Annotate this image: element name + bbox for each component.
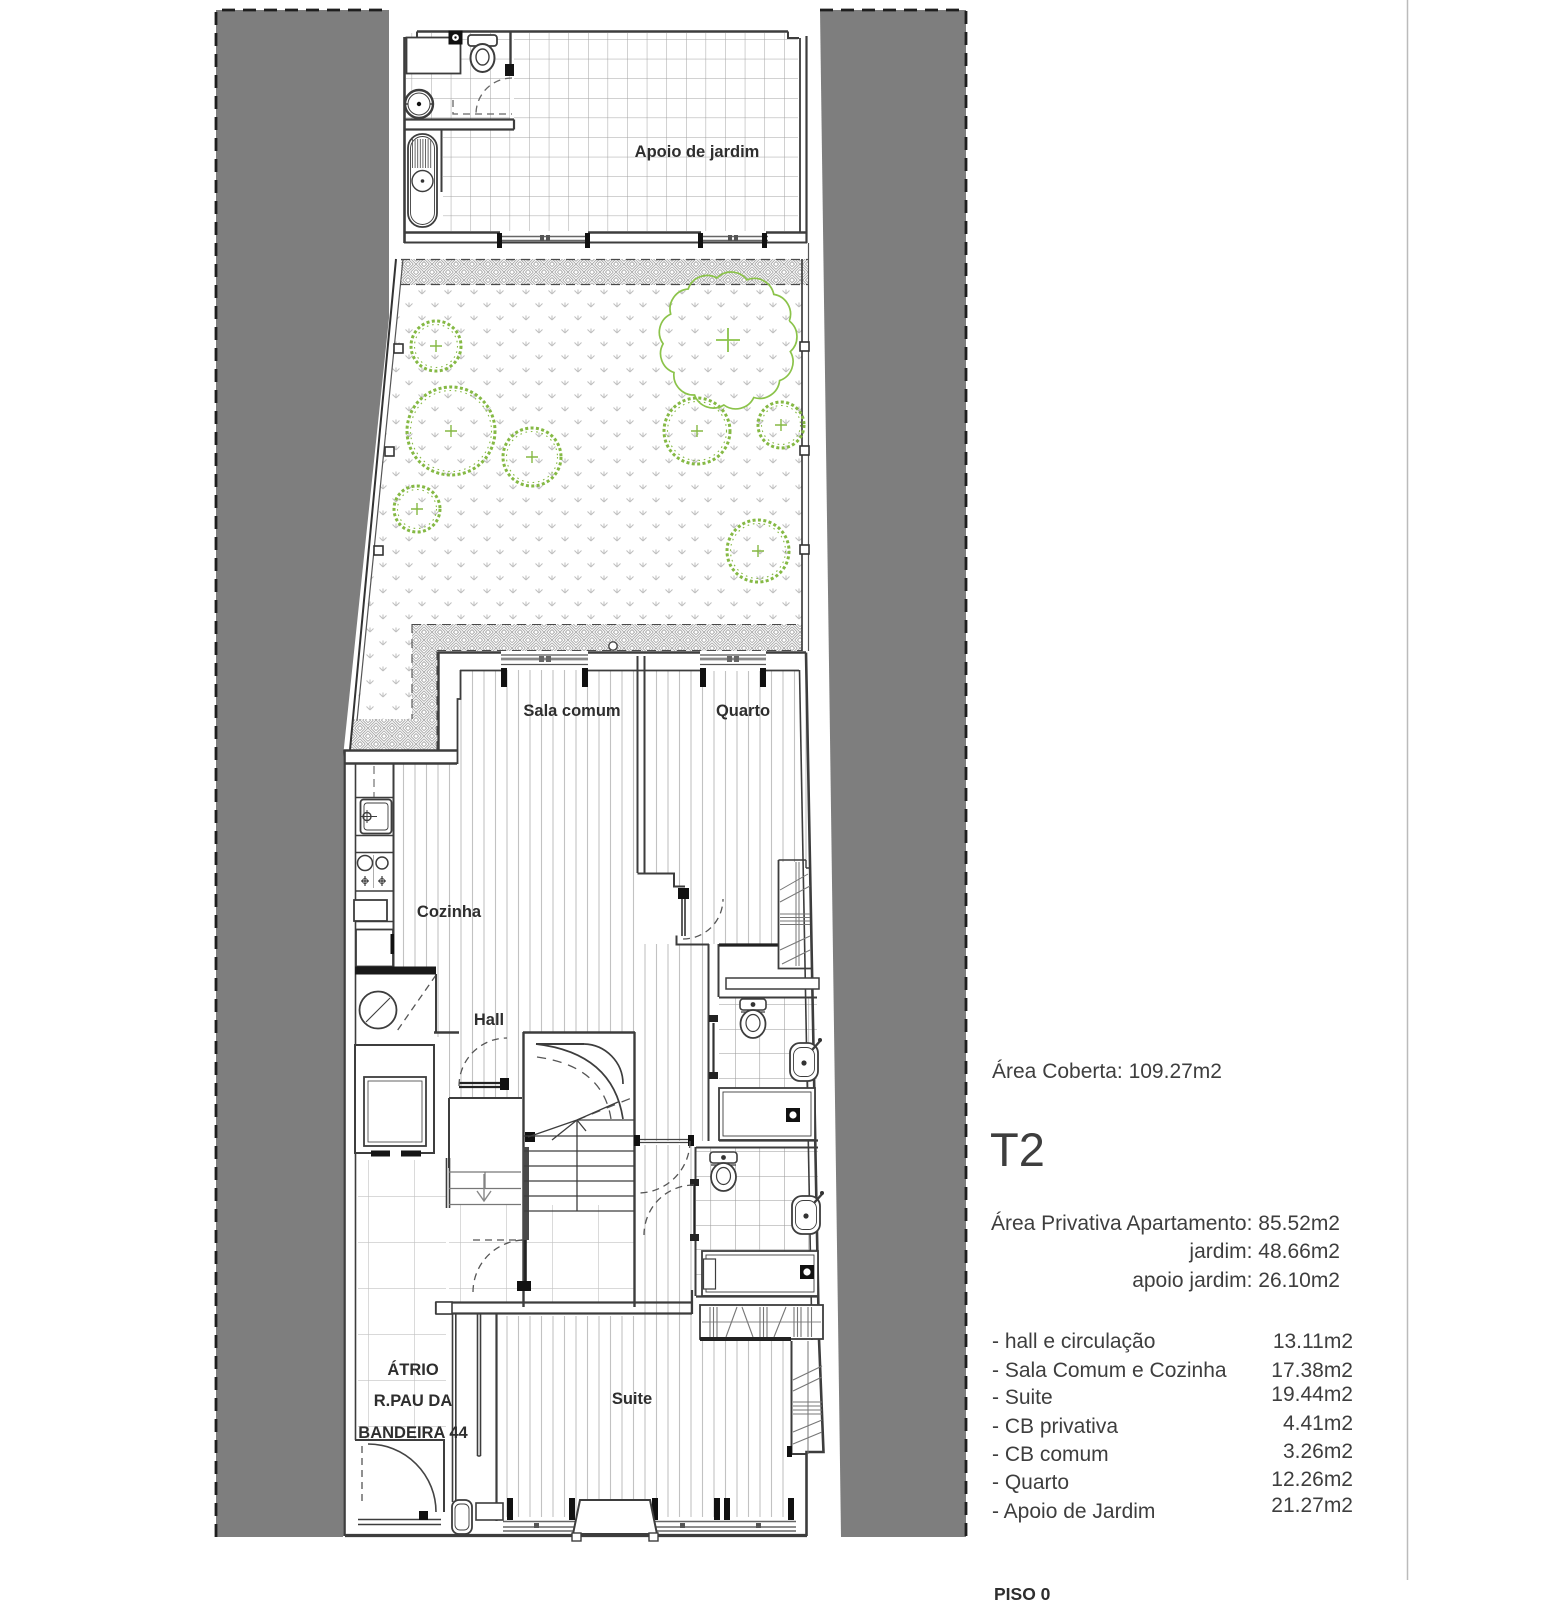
svg-text:apoio jardim: 26.10m2: apoio jardim: 26.10m2 — [1132, 1269, 1340, 1292]
svg-text:19.44m2: 19.44m2 — [1271, 1383, 1353, 1406]
svg-text:3.26m2: 3.26m2 — [1283, 1440, 1353, 1463]
svg-text:- Suite: - Suite — [992, 1386, 1053, 1409]
svg-text:17.38m2: 17.38m2 — [1271, 1359, 1353, 1382]
svg-text:- Apoio de Jardim: - Apoio de Jardim — [992, 1500, 1155, 1523]
svg-text:jardim: 48.66m2: jardim: 48.66m2 — [1188, 1240, 1340, 1263]
svg-text:Quarto: Quarto — [716, 702, 770, 720]
svg-text:21.27m2: 21.27m2 — [1271, 1494, 1353, 1517]
svg-text:Área Coberta: 109.27m2: Área Coberta: 109.27m2 — [992, 1060, 1222, 1083]
svg-text:- Quarto: - Quarto — [992, 1471, 1069, 1494]
svg-text:12.26m2: 12.26m2 — [1271, 1468, 1353, 1491]
svg-text:- Sala Comum e Cozinha: - Sala Comum e Cozinha — [992, 1359, 1227, 1382]
svg-text:BANDEIRA 44: BANDEIRA 44 — [358, 1424, 468, 1442]
svg-text:Apoio de jardim: Apoio de jardim — [635, 143, 760, 161]
svg-text:13.11m2: 13.11m2 — [1273, 1330, 1353, 1353]
svg-text:T2: T2 — [990, 1123, 1045, 1176]
svg-text:ÁTRIO: ÁTRIO — [387, 1360, 438, 1379]
svg-text:- hall e circulação: - hall e circulação — [992, 1330, 1155, 1353]
svg-text:Suite: Suite — [612, 1390, 652, 1408]
svg-text:R.PAU DA: R.PAU DA — [374, 1392, 453, 1410]
svg-text:Área Privativa Apartamento: 85: Área Privativa Apartamento: 85.52m2 — [991, 1212, 1340, 1235]
svg-text:Hall: Hall — [474, 1011, 504, 1029]
svg-text:4.41m2: 4.41m2 — [1283, 1412, 1353, 1435]
svg-text:Cozinha: Cozinha — [417, 903, 482, 921]
svg-text:PISO 0: PISO 0 — [994, 1584, 1051, 1604]
svg-text:- CB privativa: - CB privativa — [992, 1415, 1118, 1438]
svg-text:Sala comum: Sala comum — [523, 702, 620, 720]
svg-text:- CB comum: - CB comum — [992, 1443, 1109, 1466]
